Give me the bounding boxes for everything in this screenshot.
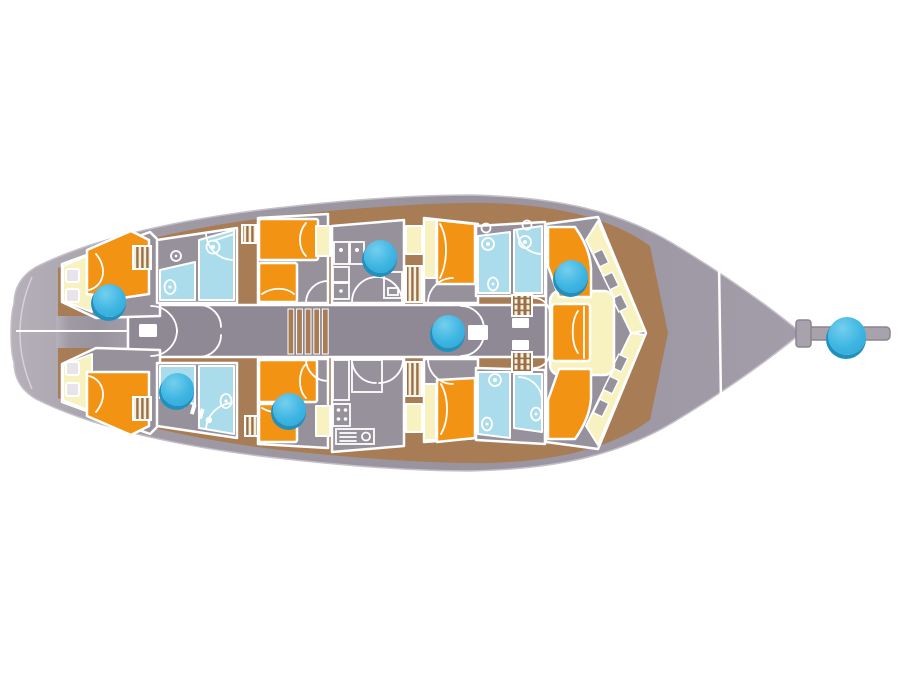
hotspot-galley-upper[interactable]	[364, 240, 397, 273]
berth	[259, 219, 318, 260]
hotspot-mid-starboard-cabin[interactable]	[273, 393, 306, 426]
bathrooms-fwd-top	[476, 221, 545, 297]
locker	[512, 352, 532, 372]
salon-table	[468, 325, 488, 340]
seat-hatch	[66, 383, 79, 396]
seat-hatch	[66, 269, 79, 282]
hanging-locker	[133, 246, 151, 269]
hanging-locker	[406, 266, 422, 302]
companionway-stairs	[288, 309, 328, 354]
yacht-deck-plan	[0, 0, 900, 674]
bathrooms-fwd-bottom	[476, 368, 545, 444]
locker	[512, 295, 532, 316]
hanging-locker	[133, 397, 151, 420]
cabin-aft-starboard	[62, 348, 160, 435]
seat-hatch	[66, 289, 79, 302]
bathrooms-aft-port	[157, 228, 237, 303]
vent-hatch	[242, 225, 256, 243]
seat-hatch	[66, 362, 79, 375]
hotspot-aft-starboard-bathroom[interactable]	[161, 373, 194, 406]
hotspot-salon-corridor[interactable]	[432, 315, 465, 348]
hotspot-aft-port-cabin[interactable]	[93, 284, 126, 317]
berth	[259, 263, 297, 302]
hotspot-bowsprit[interactable]	[828, 317, 866, 355]
cabin-mid-port	[258, 214, 330, 303]
corridor	[128, 305, 553, 357]
table	[139, 324, 157, 337]
hotspot-bow-port-seat[interactable]	[555, 260, 588, 293]
galley-lower	[332, 359, 404, 452]
hanging-locker	[406, 362, 422, 396]
